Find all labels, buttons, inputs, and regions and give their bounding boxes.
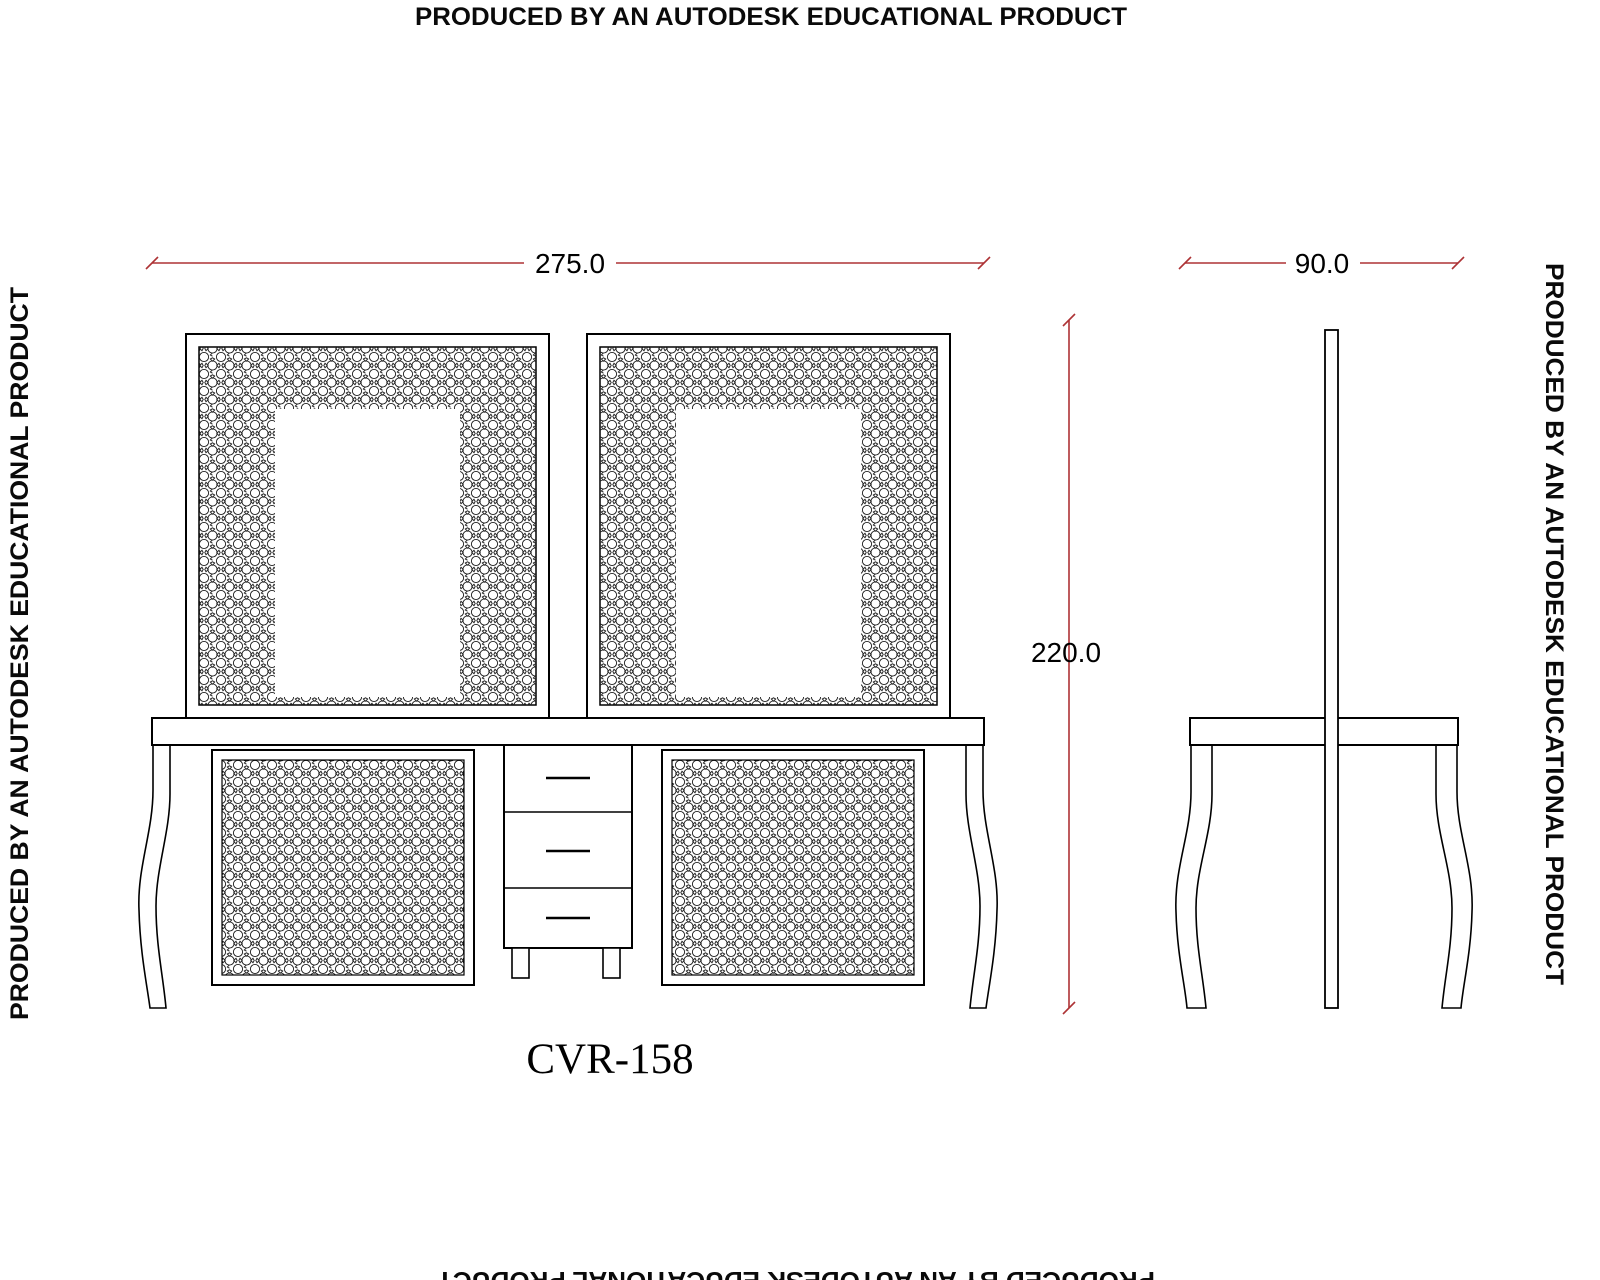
side-tabletop: [1190, 718, 1458, 745]
front-drawer-unit: [504, 745, 632, 978]
side-view: [1176, 330, 1472, 1008]
watermark-left: PRODUCED BY AN AUTODESK EDUCATIONAL PROD…: [6, 287, 34, 1020]
front-right-mirror: [587, 334, 950, 718]
front-left-leg: [139, 745, 170, 1008]
watermark-top: PRODUCED BY AN AUTODESK EDUCATIONAL PROD…: [415, 3, 1127, 31]
side-front-leg: [1176, 745, 1212, 1008]
dim-depth-label: 90.0: [1295, 248, 1350, 279]
side-mirror-post: [1325, 330, 1338, 1008]
front-tabletop: [152, 718, 984, 745]
drawer-foot-right: [603, 948, 620, 978]
side-back-leg: [1436, 745, 1472, 1008]
front-left-mirror: [186, 334, 549, 718]
front-right-leg: [966, 745, 997, 1008]
drawing-svg: PRODUCED BY AN AUTODESK EDUCATIONAL PROD…: [0, 0, 1600, 1280]
drawing-title: CVR-158: [526, 1036, 693, 1083]
cad-sheet: PRODUCED BY AN AUTODESK EDUCATIONAL PROD…: [0, 0, 1600, 1280]
watermark-bottom: PRODUCED BY AN AUTODESK EDUCATIONAL PROD…: [437, 1266, 1155, 1280]
dim-width-label: 275.0: [535, 248, 605, 279]
front-view: [139, 334, 997, 1008]
front-left-panel-ornament: [222, 760, 464, 975]
front-right-panel-ornament: [672, 760, 914, 975]
dim-height-label: 220.0: [1031, 637, 1101, 668]
watermark-right: PRODUCED BY AN AUTODESK EDUCATIONAL PROD…: [1540, 263, 1568, 985]
drawer-foot-left: [512, 948, 529, 978]
